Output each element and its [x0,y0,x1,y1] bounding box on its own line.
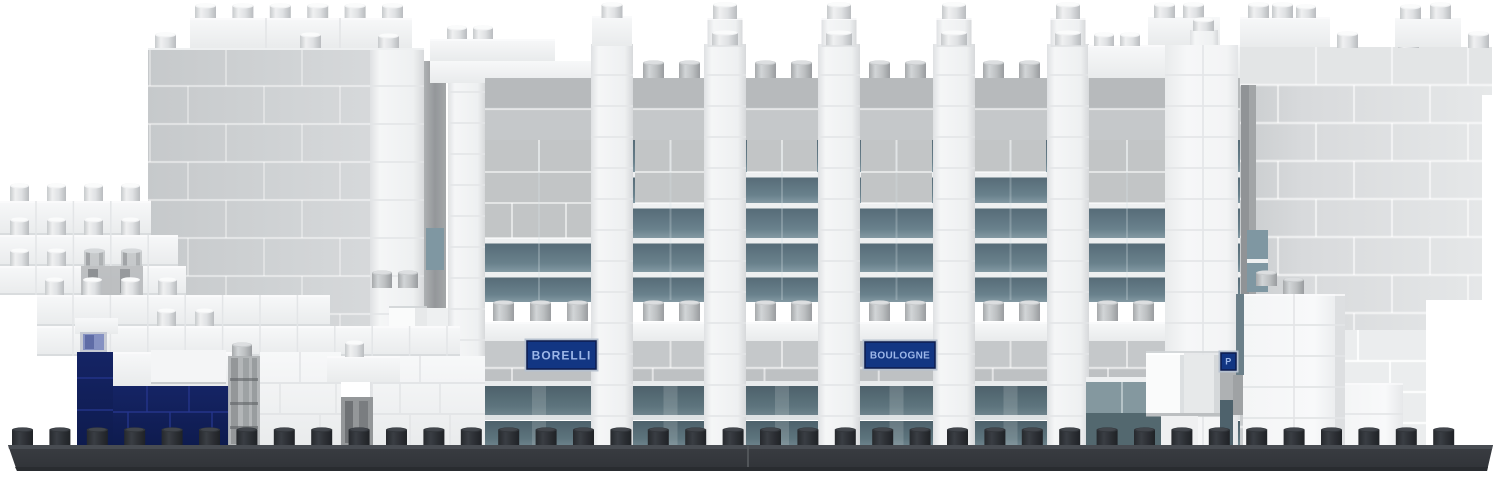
svg-text:BOULOGNE: BOULOGNE [870,351,930,362]
svg-text:P: P [1225,357,1232,367]
svg-text:BORELLI: BORELLI [532,348,592,362]
